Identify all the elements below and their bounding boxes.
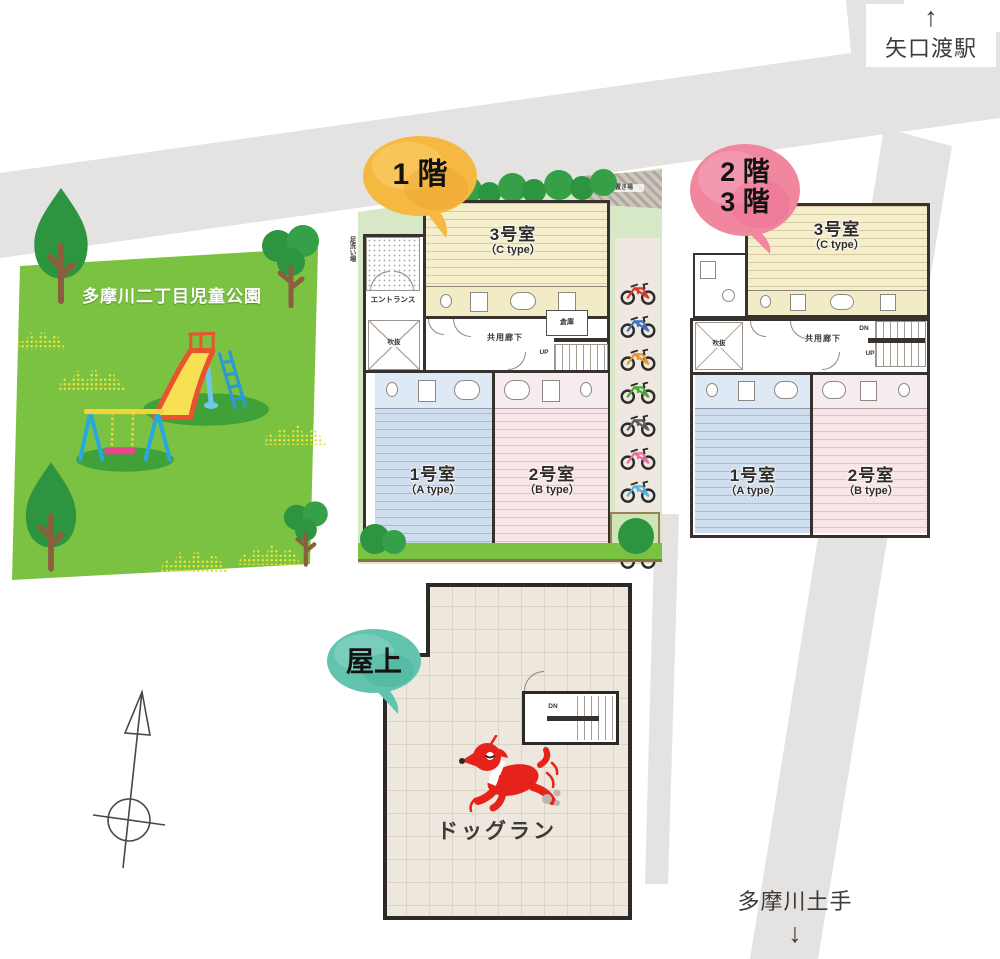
washer-fixture (738, 381, 755, 401)
washer-fixture (418, 380, 436, 402)
floor23-dn-label: DN (856, 326, 872, 333)
bicycle-icon (615, 375, 660, 408)
bathtub-fixture (774, 381, 798, 399)
down-arrow-icon: ↓ (710, 920, 880, 947)
tree-icon (382, 530, 406, 554)
bathtub-fixture (454, 380, 480, 400)
toilet-fixture (760, 295, 771, 308)
floor1-up-label: UP (536, 350, 552, 357)
toilet-fixture (898, 383, 910, 397)
toilet-fixture (706, 383, 718, 397)
washer-fixture (880, 294, 896, 311)
floor23-stairs (875, 321, 926, 367)
bicycle-icon (615, 309, 660, 342)
washer-fixture (542, 380, 560, 402)
station-name: 矢口渡駅 (874, 31, 988, 63)
wall (492, 370, 495, 546)
tree-icon (30, 186, 92, 304)
bicycle-icon (615, 342, 660, 375)
site-plan-illustration: 多摩川二丁目児童公園 (0, 0, 1000, 959)
dog-icon (445, 735, 565, 820)
floor1-storage-label: 倉庫 (550, 319, 584, 326)
balloon-floor23-line1: 2 階 (688, 157, 802, 187)
bathtub-fixture (830, 294, 854, 310)
washer-fixture (860, 381, 877, 401)
embankment-label: 多摩川土手 ↓ (710, 884, 880, 947)
swing-icon (74, 400, 176, 472)
balloon-floor23-label: 2 階 3 階 (688, 157, 802, 217)
stair-rail (868, 338, 925, 343)
station-label: ↑ 矢口渡駅 (866, 4, 996, 67)
balloon-roof: 屋上 (326, 628, 430, 718)
bicycle-icon (615, 474, 660, 507)
rooftop-dn-label: DN (545, 704, 561, 711)
sink-fixture (722, 289, 735, 302)
bicycle-icon (615, 276, 660, 309)
floor1-void-label: 吹抜 (372, 340, 416, 347)
park: 多摩川二丁目児童公園 (12, 248, 324, 583)
tree-icon (258, 218, 322, 308)
bike-rack (615, 238, 660, 546)
up-arrow-icon: ↑ (874, 4, 988, 31)
floor23-corridor-label: 共用廊下 (783, 335, 863, 344)
toilet-fixture (440, 294, 452, 308)
embankment-name: 多摩川土手 (710, 884, 880, 916)
washer-fixture (558, 292, 576, 312)
bathtub-fixture (504, 380, 530, 400)
stair-rail (547, 716, 599, 721)
north-arrow-icon (88, 658, 172, 876)
entrance-label: エントランス (364, 296, 422, 304)
balloon-floor23: 2 階 3 階 (688, 140, 808, 258)
floor23-room1-label: 1号室 （A type） (698, 467, 808, 497)
bathtub-fixture (510, 292, 536, 310)
tree-icon (22, 460, 80, 572)
toilet-fixture (580, 382, 592, 397)
balloon-floor1-label: 1 階 (360, 158, 480, 192)
bicycle-icon (615, 408, 660, 441)
floor1-stairs (554, 344, 608, 372)
balloon-floor1: 1 階 (360, 132, 482, 242)
balloon-roof-label: 屋上 (326, 646, 422, 677)
floor23-room2-label: 2号室 （B type） (816, 467, 926, 497)
foot-wash-label: 足洗い場 (344, 226, 354, 272)
bicycle-icon (615, 441, 660, 474)
sink-fixture (790, 294, 806, 311)
bathtub-fixture (822, 381, 846, 399)
floor1-room1-label: 1号室 （A type） (378, 466, 488, 496)
tree-icon (590, 169, 617, 196)
stair-rail (554, 338, 608, 342)
tree-icon (618, 518, 654, 554)
dog-run-label: ドッグラン (421, 815, 573, 845)
toilet-fixture (386, 382, 398, 397)
washer-fixture (700, 261, 716, 279)
balloon-floor23-line2: 3 階 (688, 187, 802, 217)
sink-fixture (470, 292, 488, 312)
floor23-up-label: UP (862, 351, 878, 358)
floor23-void-label: 吹抜 (699, 341, 739, 348)
wall (690, 372, 930, 375)
floor1-corridor-label: 共用廊下 (465, 334, 545, 343)
floor1-room2-label: 2号室 （B type） (498, 466, 606, 496)
wall (810, 372, 813, 538)
